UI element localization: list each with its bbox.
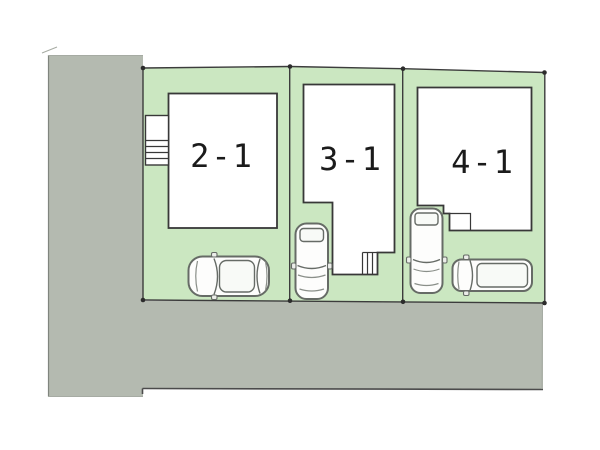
road-bottom-edge <box>143 389 544 390</box>
survey-marker <box>542 301 547 306</box>
lot-4-1-label: 4-1 <box>451 143 515 181</box>
lot-2-1-label: 2-1 <box>190 137 254 175</box>
survey-marker <box>401 66 406 71</box>
lot-4-1: 4-1 <box>407 88 533 296</box>
road-vertical-strip <box>48 55 143 397</box>
road-horizontal-strip <box>143 301 543 389</box>
car-van-icon <box>453 255 533 296</box>
road-right-edge <box>542 303 543 389</box>
survey-marker <box>542 70 547 75</box>
survey-marker <box>288 64 293 69</box>
car-wagon-icon <box>407 209 448 294</box>
entrance-steps-icon <box>146 116 169 166</box>
road-corner-tick <box>42 47 57 53</box>
lot-3-1-label: 3-1 <box>319 140 383 178</box>
survey-marker <box>401 300 406 305</box>
survey-marker <box>288 298 293 303</box>
survey-marker <box>141 66 146 71</box>
site-plan: 2-1 3-1 <box>0 0 600 450</box>
site-plan-drawing: 2-1 3-1 <box>0 0 600 450</box>
survey-marker <box>141 298 146 303</box>
car-sedan-icon <box>189 253 270 300</box>
car-sedan-icon <box>292 224 333 300</box>
